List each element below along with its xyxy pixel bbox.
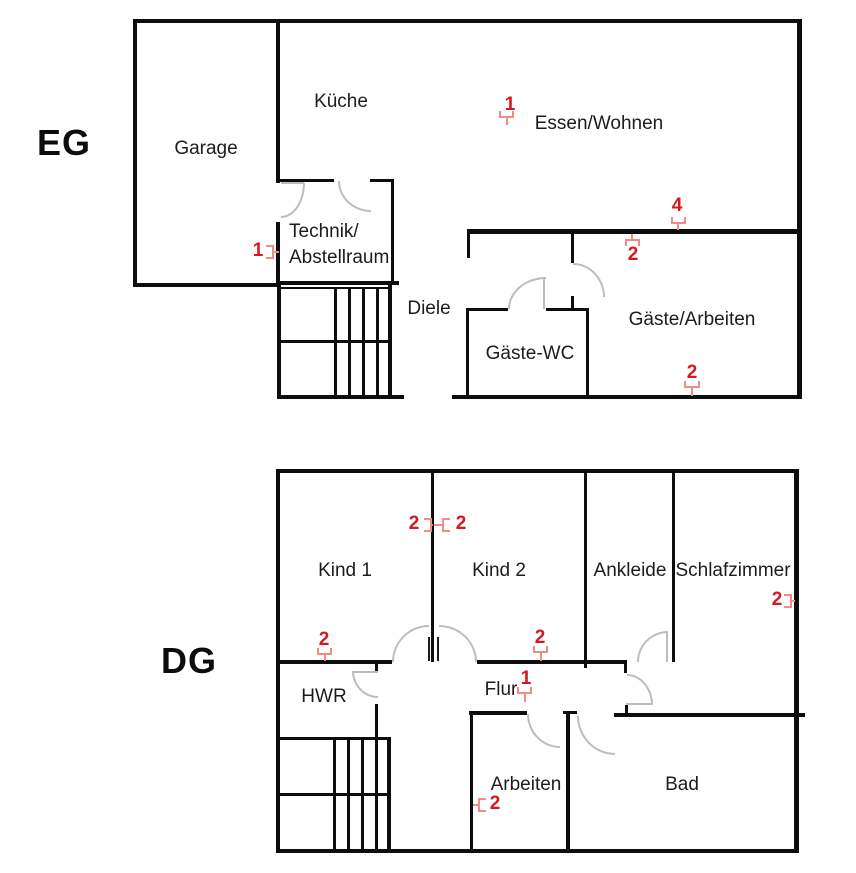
dg-hwr-door-arc [352,671,378,698]
room-label-arbeiten: Arbeiten [491,774,562,796]
dg-kind1-door-arc [392,625,429,662]
eg-top-wall [133,19,801,23]
eg-garage-kitchen-divider-lower [276,222,280,285]
eg-garage-technik-door-arc [281,183,305,218]
room-label-flur: Flur [485,679,518,701]
eg-wc-top-wall-left [466,308,508,311]
room-label-schlafzimmer: Schlafzimmer [675,560,790,582]
dg-kind1-kind2-divider [431,473,434,662]
dg-hwr-door-stub [375,660,378,671]
socket-count: 2 [628,244,639,266]
eg-stair-step-line [362,289,365,395]
dg-kind2-ankleide-divider [584,473,587,668]
dg-arbeiten-bad-divider [566,711,570,851]
dg-arbeiten-left-wall [470,713,473,851]
dg-schlafzimmer-door-leaf [626,703,651,705]
socket-stem [273,251,279,253]
socket-stem [691,388,693,396]
socket-cup [517,687,532,694]
eg-bottom-wall-left [277,395,404,399]
room-label-technik-line1: Technik/ [289,219,389,245]
dg-top-wall [276,469,799,473]
dg-arbeiten-door-arc [527,714,560,748]
dg-hwr-door-leaf [352,671,378,673]
dg-stair-step-line [347,739,350,850]
dg-hwr-right-wall [375,704,378,738]
room-label-technik-line2: Abstellraum [289,245,389,271]
eg-garage-technik-door-leaf [281,182,304,184]
floor-plan: EG Garage Küche Essen/Wohnen Technik/Abs… [0,0,856,873]
eg-technik-right-wall [391,179,394,285]
eg-wc-door-arc [508,277,546,309]
dg-schlafzimmer-door-stub-top [624,660,627,673]
eg-wc-door-leaf [543,277,545,309]
eg-guest-door-wall-upper [571,234,574,263]
dg-right-wall [794,469,799,853]
floor-label-dg: DG [161,640,217,682]
room-label-kind2: Kind 2 [472,560,526,582]
room-label-hwr: HWR [301,686,346,708]
dg-kind2-door-leaf [437,637,439,661]
socket-count: 2 [409,513,420,535]
dg-bad-door-arc [577,716,615,755]
dg-kind2-door-arc [439,625,477,662]
eg-stair-step-line [376,289,379,395]
socket-count: 1 [253,240,264,262]
eg-garage-left-wall [133,19,137,287]
socket-stem [631,234,633,240]
dg-stair-step-line [375,739,378,850]
socket-count: 2 [772,589,783,611]
room-label-essen-wohnen: Essen/Wohnen [535,113,664,135]
eg-stair-mid-line [277,340,389,343]
socket-count: 4 [672,195,683,217]
eg-kitchen-technik-door-arc [338,181,371,212]
socket-cup [671,217,686,224]
eg-garage-kitchen-divider-upper [276,19,280,183]
socket-count: 2 [490,793,501,815]
socket-cup [684,381,700,388]
dg-bad-top-wall [614,713,805,717]
room-label-kueche: Küche [314,91,368,113]
eg-garage-bottom-wall [133,283,280,287]
eg-stair-step-line [348,289,351,395]
dg-flur-wall-right [477,660,627,664]
socket-stem [524,694,526,702]
socket-stem [540,653,542,661]
eg-technik-bottom-wall [276,281,399,285]
room-label-diele: Diele [407,298,450,320]
room-label-ankleide: Ankleide [594,560,667,582]
socket-stem [506,118,508,125]
eg-living-divider-wall [467,229,802,234]
eg-bottom-wall-right [452,395,802,399]
socket-cup [478,798,486,812]
socket-cup [317,648,332,655]
eg-right-wall [797,19,802,399]
socket-stem [434,524,442,526]
dg-ankleide-door-arc [637,631,668,662]
dg-stair-step-line [333,739,336,850]
socket-stem [324,655,326,661]
eg-wc-left-wall [466,308,469,399]
room-label-kind1: Kind 1 [318,560,372,582]
socket-cup [499,111,514,118]
dg-bottom-wall [276,849,799,853]
socket-cup [442,518,450,532]
eg-wc-right-wall [586,308,589,399]
room-label-gaeste-wc: Gäste-WC [486,343,575,365]
dg-kind1-door-leaf [428,637,430,661]
dg-stair-step-line [361,739,364,850]
dg-arbeiten-top-wall [469,711,527,715]
dg-ankleide-door-leaf [666,632,668,662]
room-label-technik-abstellraum: Technik/Abstellraum [289,219,389,271]
eg-stair-step-line [334,289,337,395]
room-label-garage: Garage [174,138,237,160]
socket-stem [430,524,433,526]
eg-guest-room-door-arc [573,263,605,297]
dg-stair-mid-line [276,793,388,796]
room-label-gaeste-arbeiten: Gäste/Arbeiten [629,309,756,331]
socket-stem [677,224,679,230]
socket-cup [533,646,548,653]
socket-stem [791,600,795,602]
dg-schlafzimmer-door-arc [627,674,653,705]
eg-wc-top-wall-right [546,308,589,311]
floor-label-eg: EG [37,122,91,164]
socket-stem [473,804,478,806]
eg-diele-wall-stub [467,234,470,258]
eg-stair-top-line [277,287,389,289]
room-label-bad: Bad [665,774,699,796]
socket-count: 2 [456,513,467,535]
